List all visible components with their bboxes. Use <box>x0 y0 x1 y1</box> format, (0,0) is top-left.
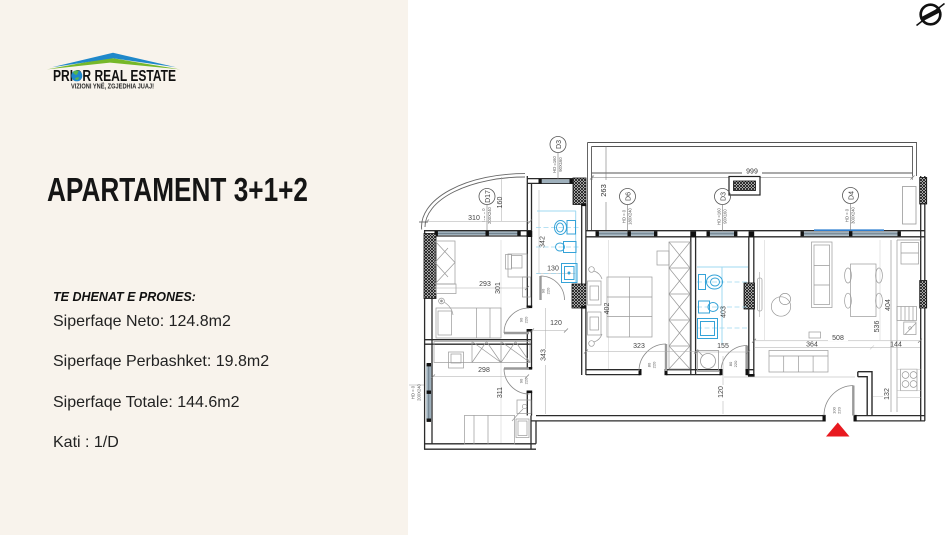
svg-text:132: 132 <box>884 388 891 400</box>
svg-text:130: 130 <box>547 266 559 273</box>
svg-text:342: 342 <box>540 236 547 248</box>
svg-text:D4: D4 <box>849 191 856 200</box>
svg-text:404: 404 <box>885 299 892 311</box>
svg-text:160: 160 <box>497 197 504 209</box>
svg-text:90X160: 90X160 <box>723 209 728 224</box>
svg-text:120: 120 <box>550 320 562 327</box>
svg-text:90X160: 90X160 <box>558 157 563 172</box>
svg-text:311: 311 <box>497 387 504 398</box>
svg-text:220: 220 <box>524 377 529 384</box>
svg-text:220: 220 <box>733 360 738 367</box>
svg-text:220: 220 <box>524 316 529 323</box>
svg-text:508: 508 <box>832 335 844 342</box>
svg-text:HD = 0: HD = 0 <box>845 208 850 222</box>
svg-text:293: 293 <box>479 281 491 288</box>
svg-text:300X240: 300X240 <box>851 206 856 223</box>
svg-text:343: 343 <box>541 349 548 361</box>
svg-text:D3: D3 <box>721 192 728 201</box>
svg-text:HD =160: HD =160 <box>552 156 557 173</box>
svg-text:D6: D6 <box>626 192 633 201</box>
svg-text:323: 323 <box>633 343 645 350</box>
svg-text:220: 220 <box>837 406 842 413</box>
svg-text:200X240: 200X240 <box>417 383 422 400</box>
svg-text:HD =160: HD =160 <box>717 208 722 225</box>
svg-text:180X240: 180X240 <box>628 207 633 224</box>
svg-text:D3: D3 <box>556 140 563 149</box>
svg-text:999: 999 <box>746 169 758 176</box>
svg-text:402: 402 <box>604 303 611 315</box>
svg-text:155: 155 <box>717 343 729 350</box>
svg-text:403: 403 <box>721 306 728 318</box>
svg-text:298: 298 <box>478 367 490 374</box>
svg-text:263: 263 <box>599 184 608 197</box>
svg-text:120: 120 <box>718 386 725 398</box>
svg-text:D17: D17 <box>485 190 492 203</box>
svg-text:HD = 0: HD = 0 <box>411 385 416 399</box>
svg-text:310: 310 <box>468 215 480 222</box>
svg-text:220: 220 <box>546 287 551 294</box>
svg-text:HD = 0: HD = 0 <box>622 209 627 223</box>
svg-text:220: 220 <box>652 361 657 368</box>
